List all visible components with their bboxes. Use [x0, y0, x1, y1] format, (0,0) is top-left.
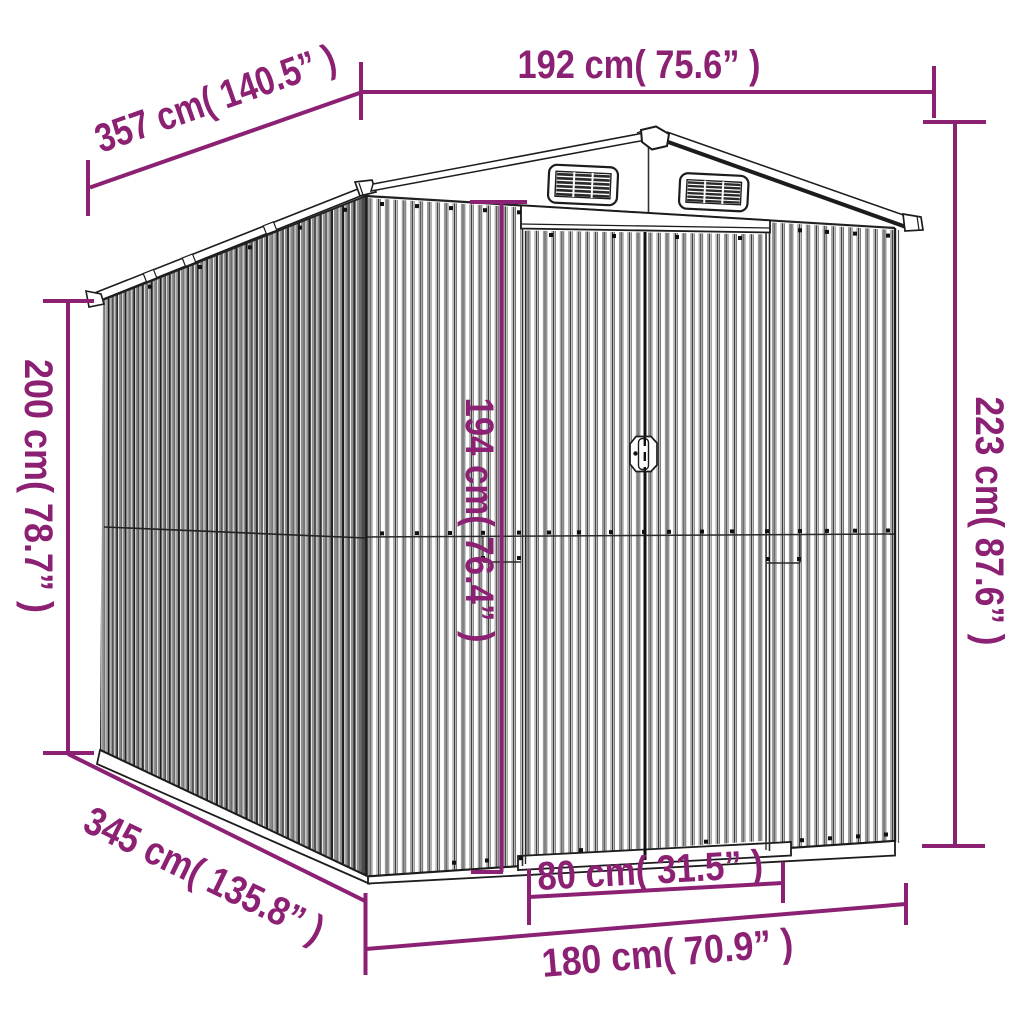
svg-text:194 cm( 76.4” ): 194 cm( 76.4” ): [457, 398, 501, 643]
svg-text:223 cm( 87.6” ): 223 cm( 87.6” ): [967, 397, 1011, 646]
svg-text:192 cm( 75.6” ): 192 cm( 75.6” ): [518, 43, 761, 87]
svg-text:200 cm( 78.7” ): 200 cm( 78.7” ): [16, 359, 60, 613]
